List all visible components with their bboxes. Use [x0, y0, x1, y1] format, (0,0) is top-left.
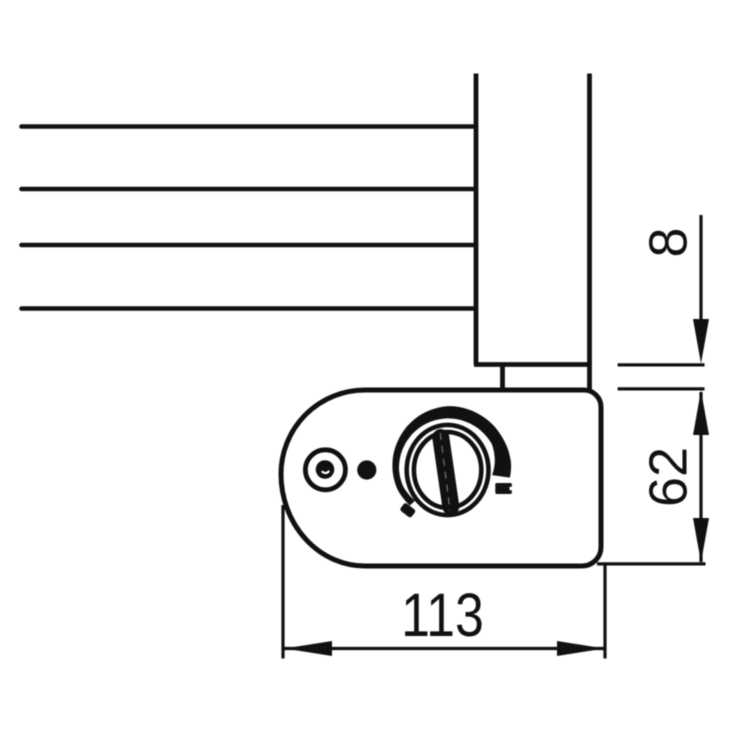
svg-text:62: 62 — [639, 447, 699, 507]
svg-text:113: 113 — [401, 581, 484, 649]
svg-text:8: 8 — [639, 227, 699, 257]
